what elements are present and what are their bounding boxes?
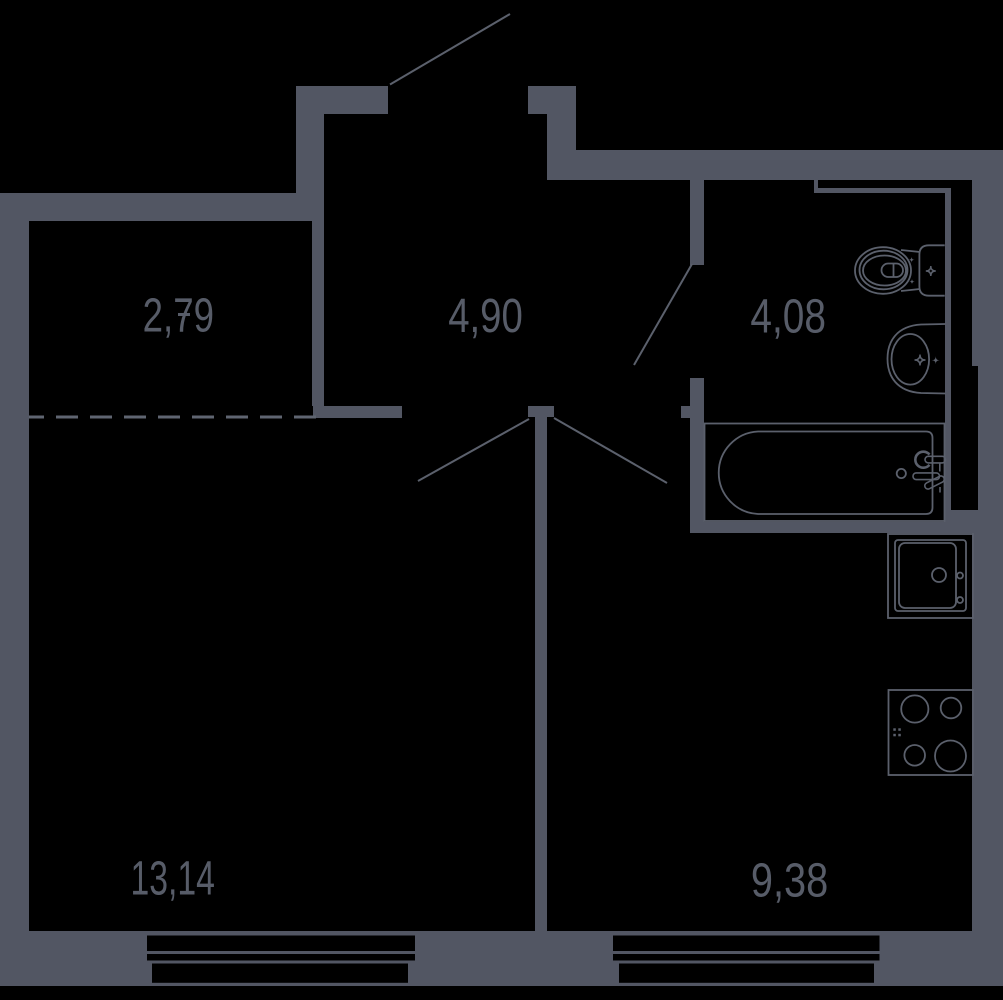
svg-text:9,38: 9,38 bbox=[751, 854, 828, 907]
svg-text:4,90: 4,90 bbox=[448, 290, 523, 343]
svg-text:4,08: 4,08 bbox=[750, 290, 826, 344]
svg-text:13,14: 13,14 bbox=[130, 851, 214, 905]
